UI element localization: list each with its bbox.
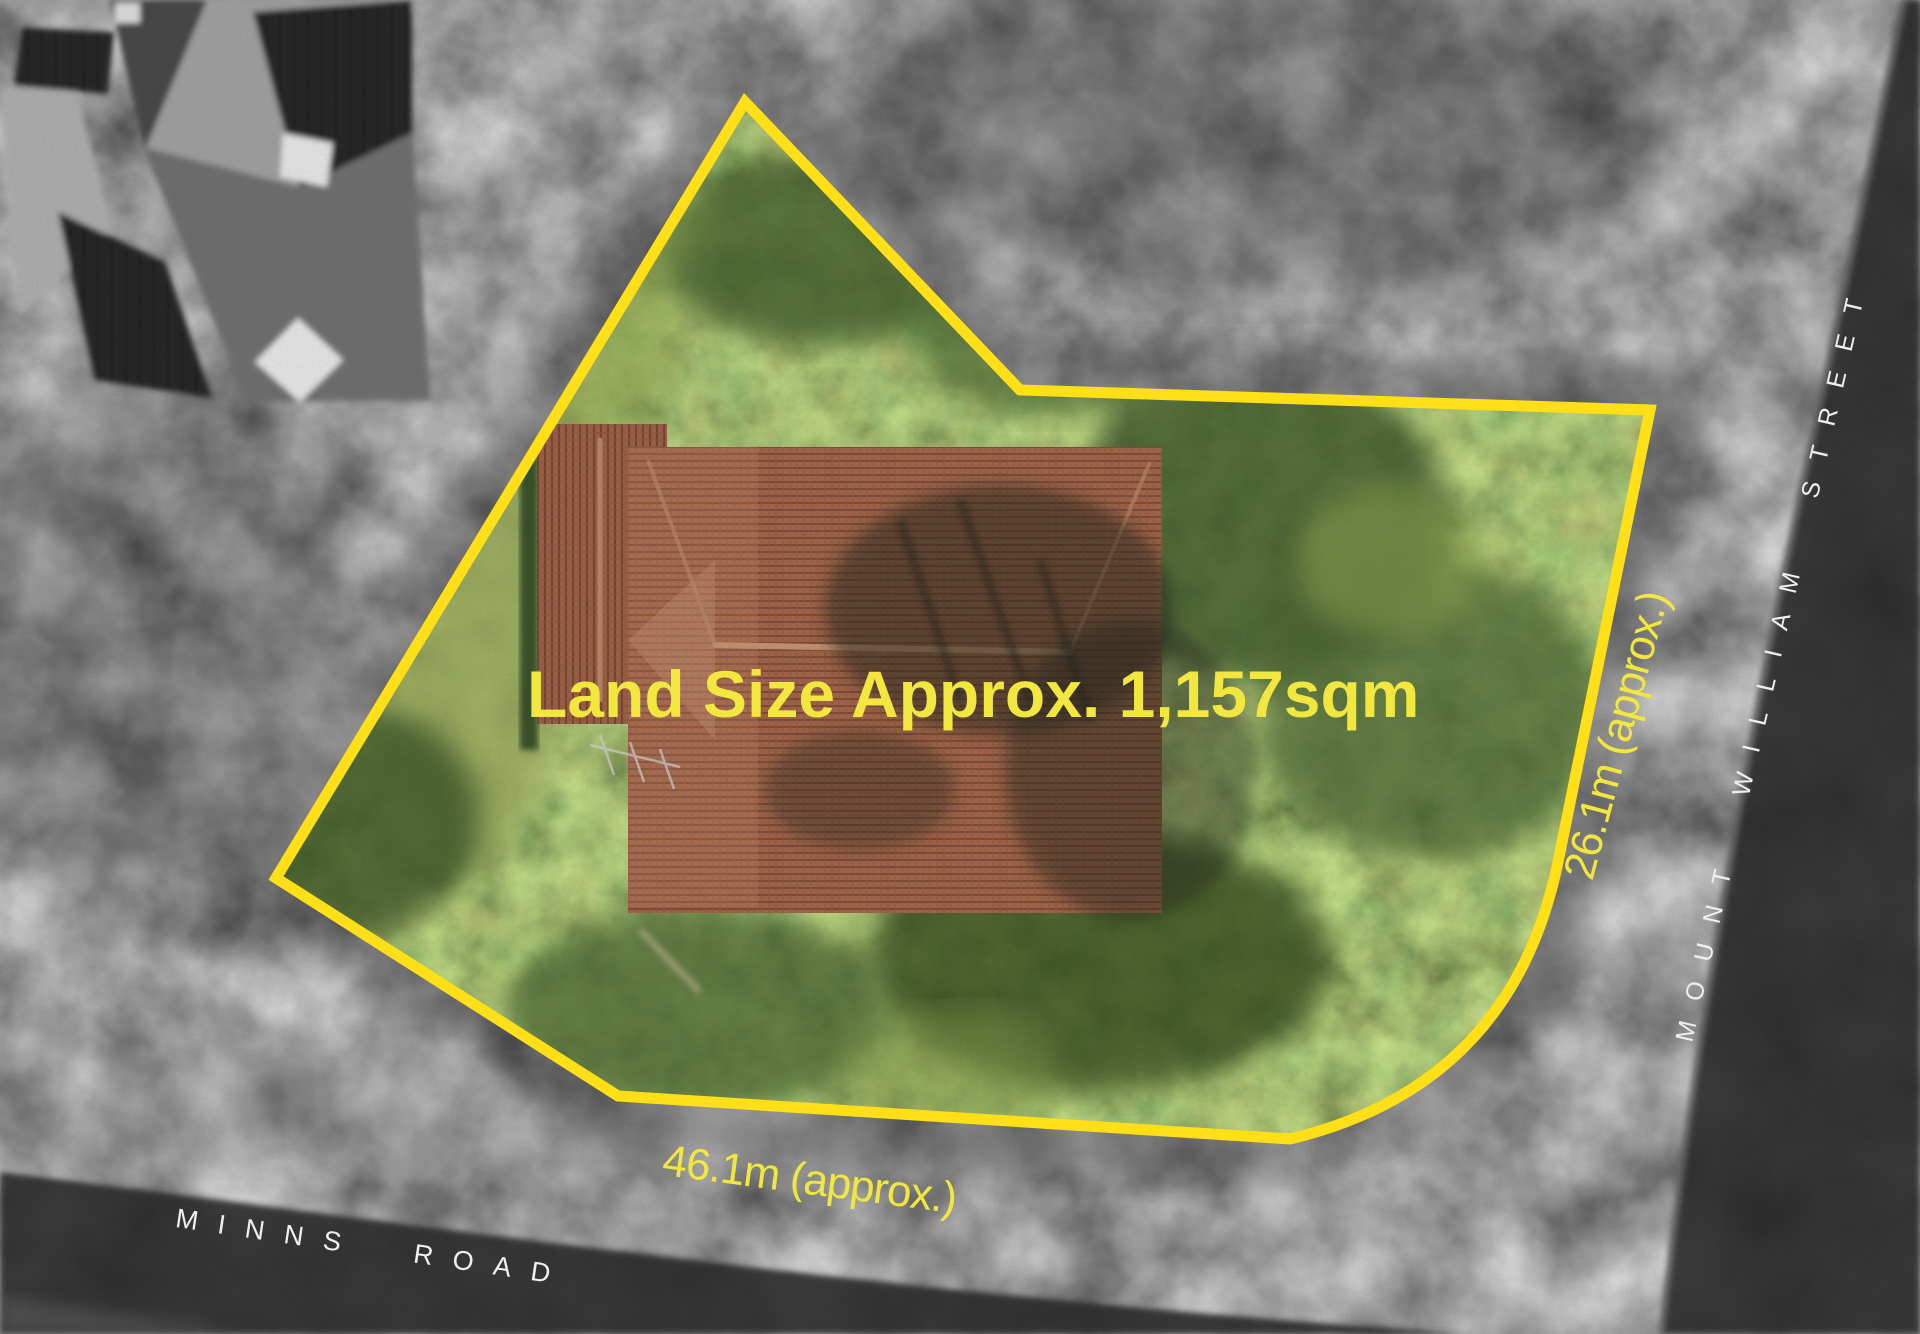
land-size-label: Land Size Approx. 1,157sqm	[527, 660, 1419, 729]
aerial-property-photo: Land Size Approx. 1,157sqm 46.1m (approx…	[0, 0, 1920, 1334]
